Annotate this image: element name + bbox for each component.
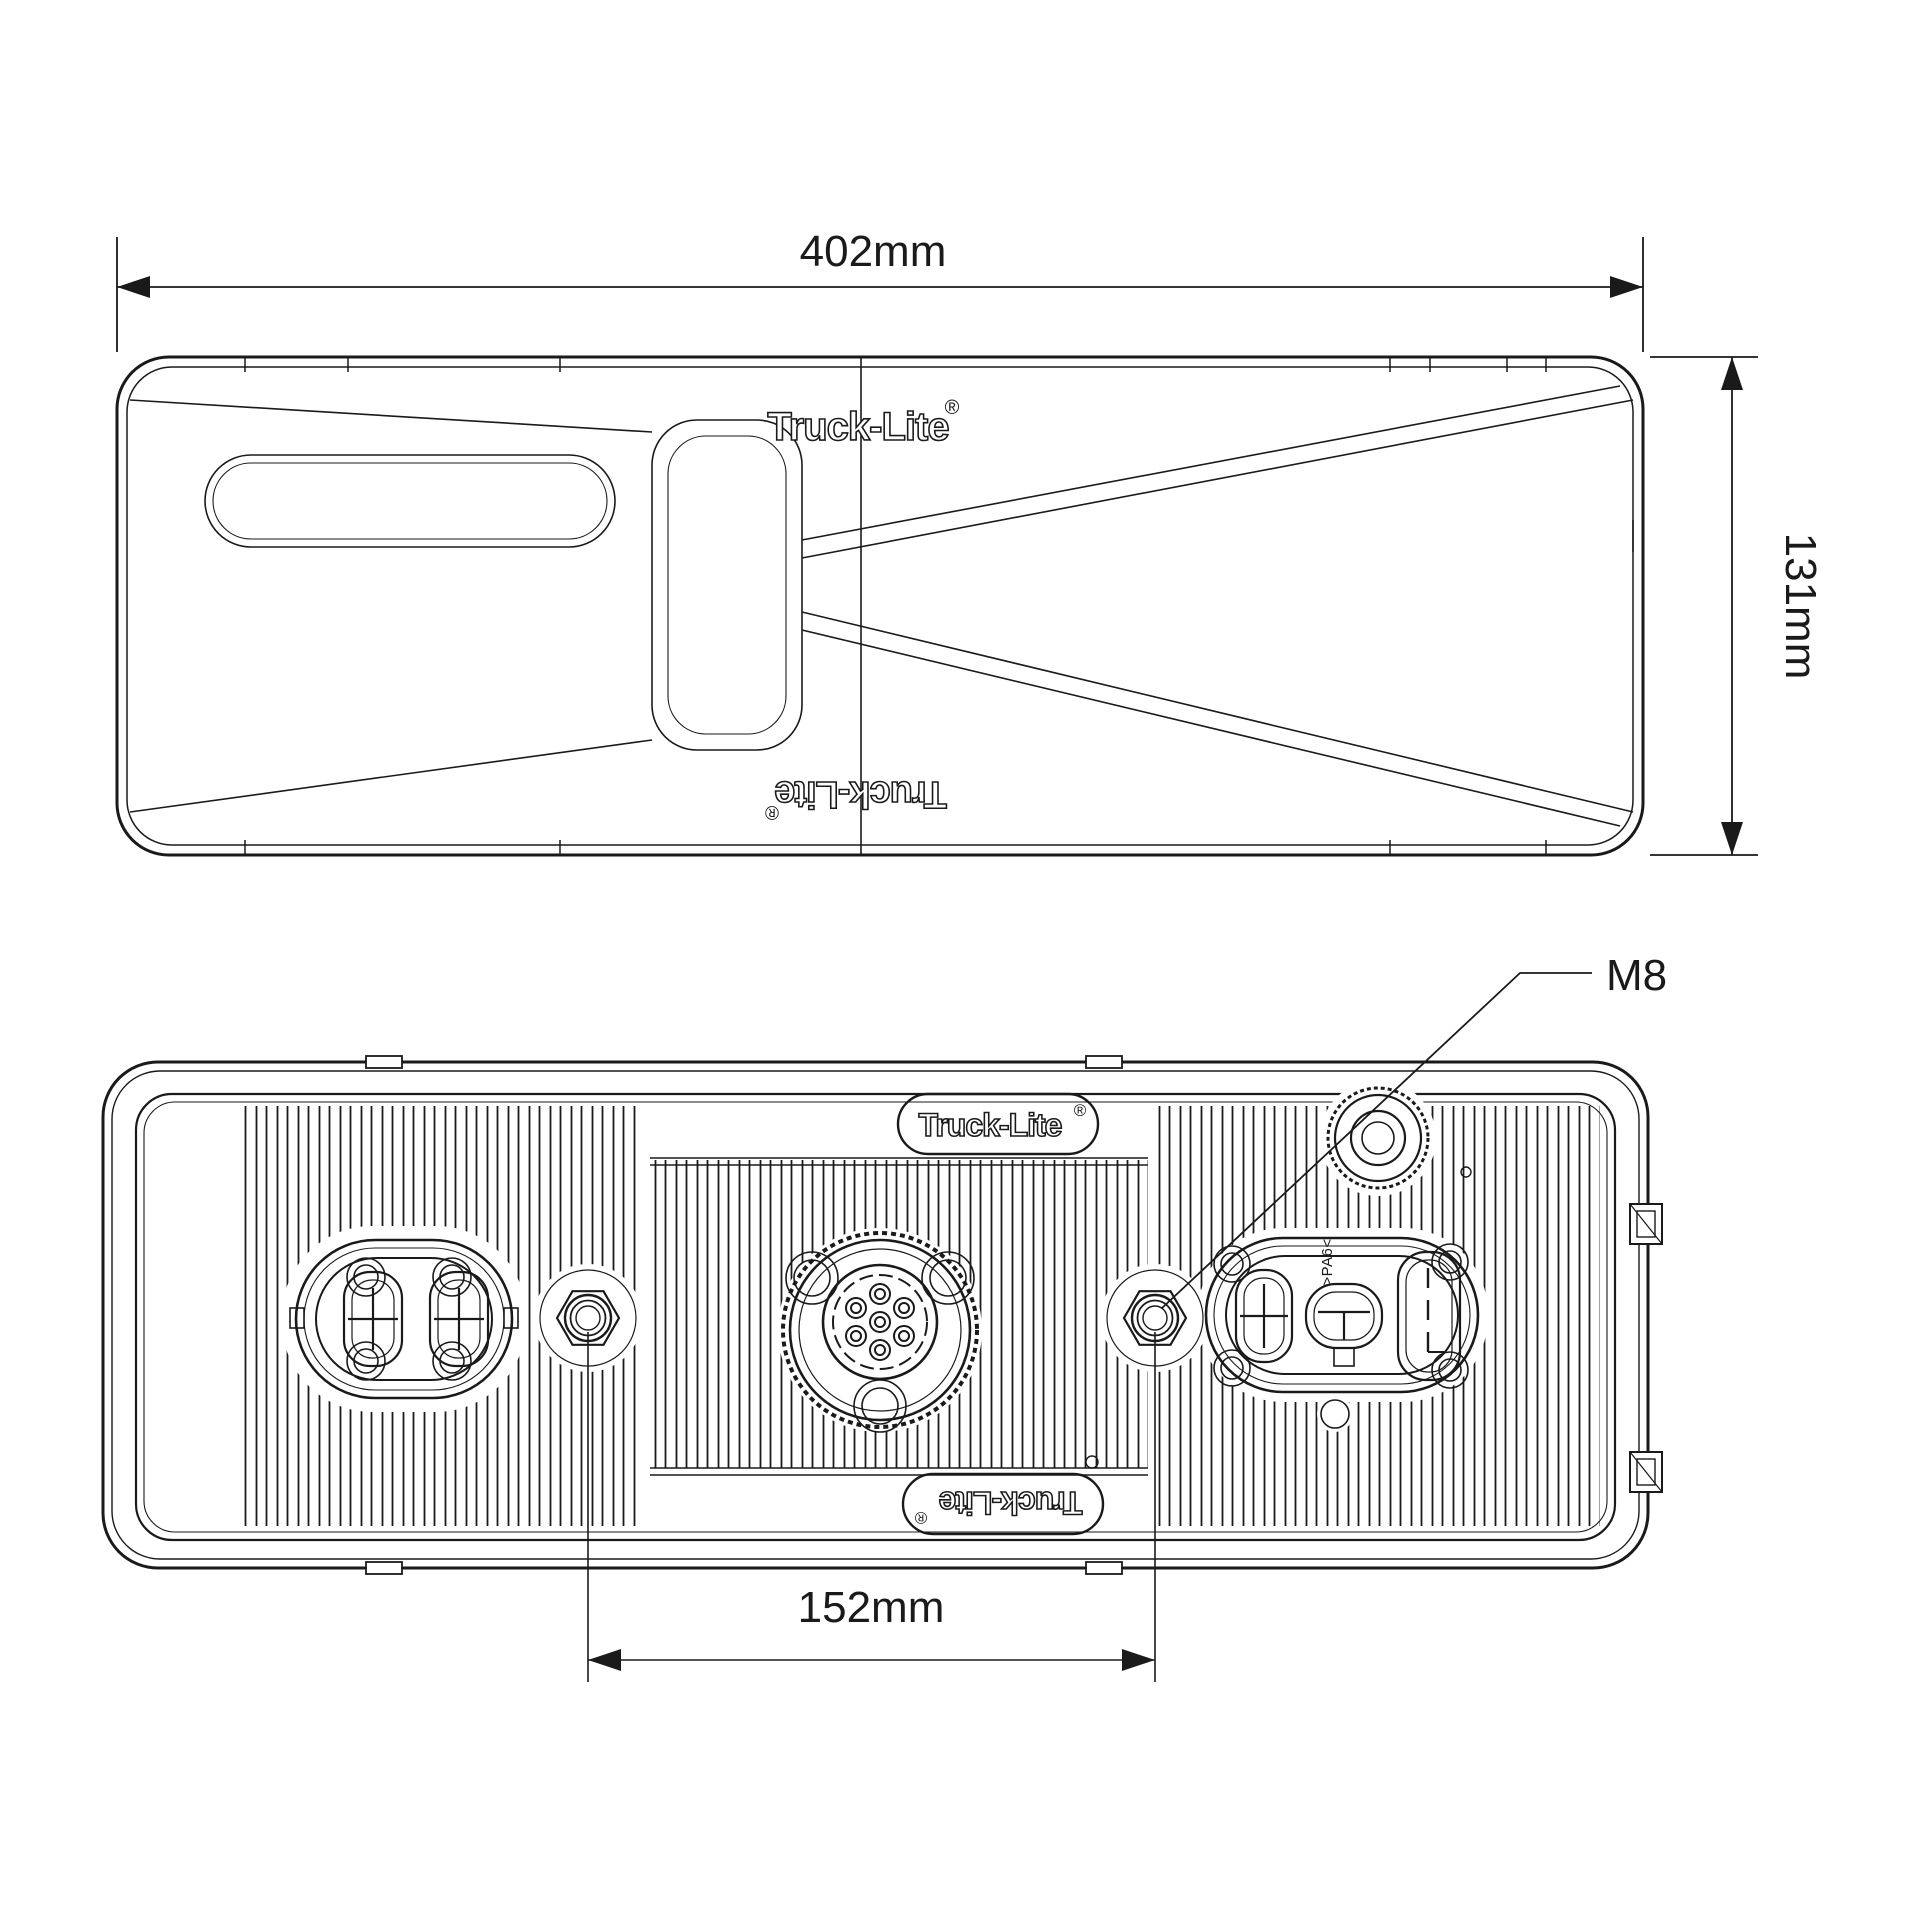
brand-logo-text: Truck-Lite [767,405,948,449]
width-dimension: 402mm [117,227,1643,352]
brand-badge-text: Truck-Lite [939,1485,1082,1521]
brand-logo-text: Truck-Lite [775,773,947,815]
arrowhead-left [588,1649,621,1671]
m8-label: M8 [1606,951,1667,1000]
arrowhead-right [1122,1649,1155,1671]
registered-mark: ® [765,801,779,822]
arrowhead-left [117,276,150,298]
height-dim-label: 131mm [1776,533,1825,680]
badge-upper: Truck-Lite ® [898,1094,1098,1154]
width-dim-label: 402mm [800,227,947,276]
registered-mark: ® [945,397,960,419]
arrowhead-bottom [1721,822,1743,855]
drawing-page: Truck-Lite ® Truck-Lite ® 402mm 131mm [0,0,1920,1920]
arrowhead-top [1721,357,1743,390]
material-marking-label: >PA6< [1319,1238,1336,1285]
badge-lower: Truck-Lite ® [903,1474,1103,1534]
top-view-logo: Truck-Lite ® [767,397,959,449]
registered-mark: ® [1074,1101,1087,1120]
registered-mark: ® [914,1508,927,1527]
back-view: Truck-Lite ® Truck-Lite ® [103,951,1667,1682]
technical-drawing: Truck-Lite ® Truck-Lite ® 402mm 131mm [0,0,1920,1920]
arrowhead-right [1610,276,1643,298]
top-view-logo-inverted: Truck-Lite ® [765,773,947,822]
mounting-clips [1630,1204,1662,1492]
stud-spacing-label: 152mm [798,1583,945,1632]
rib-texture [237,1080,1600,1526]
height-dimension: 131mm [1650,357,1825,855]
brand-badge-text: Truck-Lite [919,1107,1062,1143]
top-view: Truck-Lite ® Truck-Lite ® 402mm 131mm [117,227,1825,855]
